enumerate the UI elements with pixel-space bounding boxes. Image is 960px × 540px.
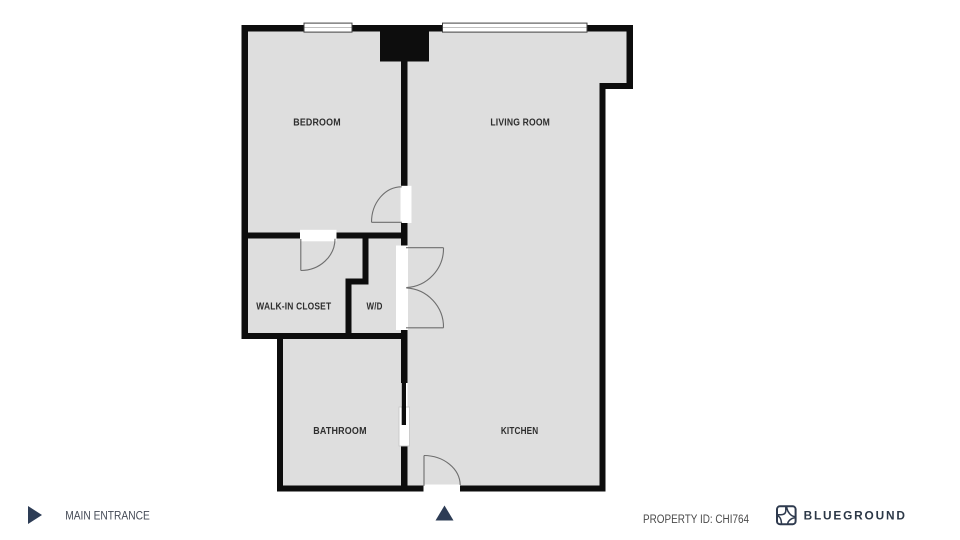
svg-text:LIVING ROOM: LIVING ROOM — [490, 117, 550, 128]
svg-text:KITCHEN: KITCHEN — [501, 426, 539, 437]
svg-text:BATHROOM: BATHROOM — [313, 426, 366, 437]
svg-text:WALK-IN CLOSET: WALK-IN CLOSET — [256, 301, 331, 312]
svg-text:W/D: W/D — [367, 302, 383, 313]
svg-text:BEDROOM: BEDROOM — [293, 117, 341, 128]
svg-text:BLUEGROUND: BLUEGROUND — [804, 509, 907, 523]
svg-text:PROPERTY ID: CHI764: PROPERTY ID: CHI764 — [643, 514, 750, 526]
svg-text:MAIN ENTRANCE: MAIN ENTRANCE — [65, 509, 150, 523]
